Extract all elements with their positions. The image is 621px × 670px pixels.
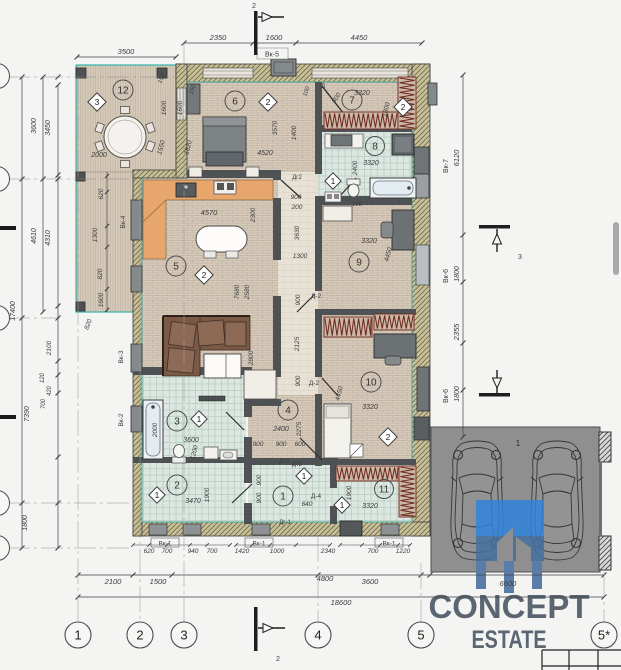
svg-text:7390: 7390 bbox=[24, 406, 31, 422]
svg-text:3: 3 bbox=[174, 417, 180, 428]
svg-text:2: 2 bbox=[386, 432, 391, 442]
svg-text:3: 3 bbox=[95, 97, 100, 107]
svg-text:4450: 4450 bbox=[351, 33, 369, 42]
svg-text:3630: 3630 bbox=[294, 225, 301, 240]
svg-text:9: 9 bbox=[356, 258, 362, 269]
svg-text:7: 7 bbox=[349, 96, 355, 107]
svg-text:10: 10 bbox=[365, 378, 377, 389]
svg-text:1600: 1600 bbox=[161, 100, 168, 115]
svg-text:4: 4 bbox=[285, 406, 291, 417]
svg-text:12: 12 bbox=[117, 86, 129, 97]
svg-text:1300: 1300 bbox=[92, 227, 99, 242]
svg-text:4800: 4800 bbox=[317, 574, 335, 583]
svg-text:820: 820 bbox=[97, 268, 104, 279]
svg-text:2340: 2340 bbox=[320, 548, 336, 555]
svg-text:Вк-3: Вк-3 bbox=[118, 350, 125, 363]
svg-text:18600: 18600 bbox=[331, 598, 353, 607]
svg-text:2: 2 bbox=[136, 628, 143, 643]
svg-text:4570: 4570 bbox=[201, 208, 219, 217]
svg-text:Вк-1: Вк-1 bbox=[383, 541, 396, 548]
svg-text:3320: 3320 bbox=[363, 160, 379, 167]
svg-text:3320: 3320 bbox=[354, 90, 370, 97]
svg-text:1800: 1800 bbox=[454, 266, 461, 282]
svg-text:3450: 3450 bbox=[45, 120, 52, 136]
svg-text:700: 700 bbox=[368, 548, 379, 555]
svg-text:3470: 3470 bbox=[185, 498, 201, 505]
svg-text:700: 700 bbox=[162, 548, 173, 555]
svg-text:2000: 2000 bbox=[90, 152, 107, 159]
svg-text:2275: 2275 bbox=[296, 421, 303, 437]
svg-text:3320: 3320 bbox=[362, 503, 378, 510]
svg-text:900: 900 bbox=[256, 492, 263, 503]
svg-text:2300: 2300 bbox=[250, 207, 257, 223]
svg-text:17400: 17400 bbox=[10, 301, 17, 321]
svg-text:3570: 3570 bbox=[272, 120, 279, 135]
svg-text:Вк-1: Вк-1 bbox=[159, 541, 172, 548]
svg-text:420: 420 bbox=[47, 385, 53, 396]
svg-text:2125: 2125 bbox=[294, 336, 301, 352]
svg-text:900: 900 bbox=[291, 194, 302, 201]
svg-text:3320: 3320 bbox=[362, 404, 378, 411]
svg-text:2355: 2355 bbox=[452, 323, 461, 342]
svg-text:Д: Д bbox=[321, 83, 326, 90]
svg-text:8: 8 bbox=[372, 142, 378, 153]
svg-text:Д-2: Д-2 bbox=[311, 293, 322, 300]
svg-text:2: 2 bbox=[276, 656, 280, 663]
svg-text:3600: 3600 bbox=[183, 437, 199, 444]
svg-text:7680: 7680 bbox=[234, 284, 241, 299]
svg-text:Вк-6: Вк-6 bbox=[443, 389, 450, 403]
svg-text:1800: 1800 bbox=[22, 515, 29, 531]
svg-text:2400: 2400 bbox=[272, 426, 289, 433]
svg-text:1900: 1900 bbox=[346, 485, 353, 500]
svg-text:2800: 2800 bbox=[248, 350, 255, 366]
svg-text:900: 900 bbox=[295, 294, 302, 305]
svg-text:1300: 1300 bbox=[293, 253, 308, 260]
svg-text:5: 5 bbox=[417, 628, 424, 643]
svg-text:5*: 5* bbox=[598, 628, 610, 643]
svg-text:1600: 1600 bbox=[98, 292, 105, 307]
svg-text:700: 700 bbox=[207, 548, 218, 555]
svg-text:5: 5 bbox=[173, 262, 179, 273]
svg-text:Дт2: Дт2 bbox=[292, 462, 303, 468]
svg-text:6120: 6120 bbox=[452, 149, 461, 167]
svg-text:2: 2 bbox=[202, 270, 207, 280]
svg-text:Вк-7: Вк-7 bbox=[443, 159, 450, 173]
svg-text:940: 940 bbox=[188, 548, 199, 555]
svg-text:2: 2 bbox=[252, 3, 256, 10]
svg-text:620: 620 bbox=[144, 548, 155, 555]
svg-text:1: 1 bbox=[302, 471, 307, 481]
svg-text:900: 900 bbox=[253, 441, 264, 448]
svg-text:11: 11 bbox=[379, 485, 390, 496]
svg-text:Д-4: Д-4 bbox=[311, 493, 322, 500]
svg-text:4310: 4310 bbox=[45, 230, 52, 246]
svg-text:1220: 1220 bbox=[396, 548, 411, 555]
svg-text:640: 640 bbox=[302, 501, 313, 508]
svg-text:2400: 2400 bbox=[352, 160, 359, 176]
svg-text:2: 2 bbox=[266, 97, 271, 107]
svg-text:1: 1 bbox=[340, 500, 345, 510]
svg-text:1900: 1900 bbox=[204, 487, 211, 502]
svg-text:6: 6 bbox=[232, 97, 238, 108]
svg-text:1600: 1600 bbox=[266, 33, 284, 42]
svg-text:3600: 3600 bbox=[362, 577, 380, 586]
svg-text:1: 1 bbox=[74, 628, 81, 643]
svg-text:Вк-1: Вк-1 bbox=[253, 541, 266, 548]
svg-text:6600: 6600 bbox=[500, 579, 518, 588]
svg-text:Д-2: Д-2 bbox=[309, 380, 320, 387]
svg-text:2350: 2350 bbox=[209, 33, 228, 42]
svg-text:1: 1 bbox=[280, 492, 286, 503]
svg-text:2: 2 bbox=[174, 481, 180, 492]
svg-text:3600: 3600 bbox=[31, 118, 38, 134]
svg-text:3320: 3320 bbox=[361, 238, 377, 245]
svg-text:2100: 2100 bbox=[104, 577, 123, 586]
svg-text:600: 600 bbox=[295, 441, 306, 448]
svg-text:900: 900 bbox=[276, 441, 287, 448]
svg-text:900: 900 bbox=[256, 474, 263, 485]
svg-text:1: 1 bbox=[155, 490, 160, 500]
svg-text:Вк-5: Вк-5 bbox=[265, 52, 279, 59]
svg-text:3: 3 bbox=[518, 254, 522, 261]
svg-text:120: 120 bbox=[40, 372, 46, 383]
svg-text:1000: 1000 bbox=[270, 548, 285, 555]
svg-text:1400: 1400 bbox=[291, 125, 298, 140]
svg-text:2: 2 bbox=[401, 102, 406, 112]
svg-text:2580: 2580 bbox=[244, 284, 251, 300]
svg-text:3500: 3500 bbox=[118, 47, 136, 56]
svg-text:Дг-1: Дг-1 bbox=[279, 520, 291, 526]
svg-text:900: 900 bbox=[295, 375, 302, 386]
svg-text:1420: 1420 bbox=[235, 548, 250, 555]
svg-text:1: 1 bbox=[516, 439, 521, 448]
svg-text:CONCEPT: CONCEPT bbox=[429, 588, 590, 625]
svg-text:1: 1 bbox=[331, 176, 336, 186]
svg-text:2100: 2100 bbox=[46, 340, 53, 356]
svg-text:1500: 1500 bbox=[150, 577, 168, 586]
svg-text:1600: 1600 bbox=[177, 100, 184, 115]
svg-text:200: 200 bbox=[291, 204, 303, 211]
svg-text:100: 100 bbox=[352, 202, 363, 208]
svg-text:Дг2: Дг2 bbox=[292, 175, 302, 181]
svg-text:2000: 2000 bbox=[152, 422, 159, 438]
svg-text:4: 4 bbox=[314, 628, 321, 643]
svg-text:620: 620 bbox=[98, 188, 105, 199]
svg-text:1: 1 bbox=[197, 414, 202, 424]
svg-text:Вк-6: Вк-6 bbox=[443, 269, 450, 283]
svg-text:Вк-2: Вк-2 bbox=[118, 413, 125, 426]
svg-text:700: 700 bbox=[41, 398, 47, 409]
svg-text:3: 3 bbox=[180, 628, 187, 643]
svg-text:ESTATE: ESTATE bbox=[472, 626, 547, 654]
svg-text:1800: 1800 bbox=[454, 386, 461, 402]
svg-text:4610: 4610 bbox=[31, 228, 38, 244]
svg-text:Вк-4: Вк-4 bbox=[120, 215, 127, 228]
svg-text:Дт2: Дт2 bbox=[279, 459, 290, 465]
svg-text:4520: 4520 bbox=[257, 150, 273, 157]
